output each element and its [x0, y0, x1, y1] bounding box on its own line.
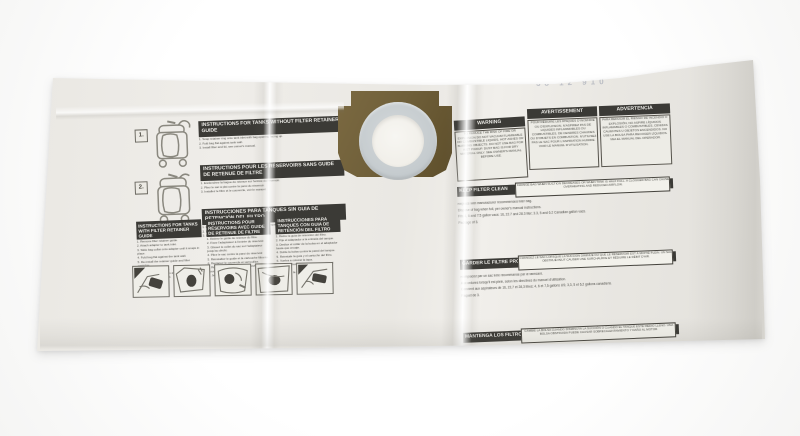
section-lines: Replace with manufacturer recommended fi…	[458, 194, 675, 225]
warning-body-text: PARA REDUCIR EL RIESGO DE INCENDIO O EXP…	[601, 115, 671, 143]
instructions-without-guide-en: INSTRUCTIONS FOR TANKS WITHOUT FILTER RE…	[198, 116, 343, 162]
pictogram-insert-bag-icon	[132, 265, 170, 298]
right-warning-panel: WARNING TO REDUCE THE RISK OF FIRE OR EX…	[454, 103, 682, 405]
keep-filter-clean-section: KEEP FILTER CLEAN CHANGE BAG WHEN SUCTIO…	[457, 178, 675, 245]
section-lines: Reemplace con una bolsa de filtro recome…	[464, 340, 681, 371]
pictogram-position-collar-icon	[173, 264, 211, 297]
vacuum-diagram-1-icon	[148, 117, 196, 171]
vacuum-diagram-2-icon	[148, 169, 198, 227]
garder-filtre-propre-section: GARDER LE FILTRE PROPRE CHANGEZ LE SAC L…	[460, 251, 678, 318]
instruction-header-bar: INSTRUCTIONS FOR TANKS WITH FILTER RETAI…	[136, 219, 201, 240]
step-1-badge: 1.	[135, 129, 148, 142]
warning-box-es: ADVERTENCIA PARA REDUCIR EL RIESGO DE IN…	[599, 103, 672, 167]
pictogram-press-collar-icon	[214, 264, 252, 297]
pictogram-replace-lid-icon	[296, 262, 334, 295]
section-lines: Remplacez par un sac filtre recommandé p…	[461, 267, 678, 298]
warning-tri-panel: WARNING TO REDUCE THE RISK OF FIRE OR EX…	[454, 103, 672, 172]
garder-filtre-propre-note: CHANGEZ LE SAC LORSQUE LA SUCCION DIMINU…	[519, 250, 673, 264]
left-instruction-panel: 1. 2.	[126, 108, 350, 316]
photo-background: { "stamp": "38 12 910", "collar": {"colo…	[0, 0, 800, 436]
bag-paper-surface: 1. 2.	[0, 0, 800, 436]
stamp-text: 38 12 910	[536, 77, 608, 88]
warning-body-text: POUR RÉDUIRE LES RISQUES D'INCENDIE OU D…	[528, 118, 598, 150]
instruction-header-bar: INSTRUCCIONES PARA TANQUES CON GUIA DE R…	[275, 214, 340, 235]
installation-pictogram-row	[132, 262, 339, 302]
warning-box-fr: AVERTISSEMENT POUR RÉDUIRE LES RISQUES D…	[527, 106, 600, 170]
filter-care-sections: KEEP FILTER CLEAN CHANGE BAG WHEN SUCTIO…	[457, 178, 681, 391]
instructions-without-guide-fr: INSTRUCTIONS POUR LES RÉSERVOIRS SANS GU…	[200, 160, 345, 206]
warning-body-text: TO REDUCE THE RISK OF FIRE OR EXPLOSION …	[455, 128, 525, 161]
warning-box-en: WARNING TO REDUCE THE RISK OF FIRE OR EX…	[454, 116, 528, 181]
right-edge-shading	[688, 60, 766, 346]
keep-filter-clean-note: CHANGE BAG WHEN SUCTION DECREASES OR WHE…	[516, 177, 670, 191]
vacuum-bag: 1. 2.	[0, 0, 800, 436]
mantenga-filtros-limpios-note: CAMBIE LA BOLSA CUANDO DISMINUYA LA SUCC…	[522, 323, 676, 337]
instruction-header-bar: INSTRUCTIONS POUR RÉSERVOIRS AVEC GUIDE …	[206, 217, 271, 238]
collar-hole	[372, 115, 424, 167]
step-2-badge: 2.	[135, 181, 148, 194]
mantenga-filtros-limpios-section: MANTENGA LOS FILTROS LIMPIOS CAMBIE LA B…	[463, 324, 681, 391]
pictogram-fold-bag-icon	[255, 263, 293, 296]
